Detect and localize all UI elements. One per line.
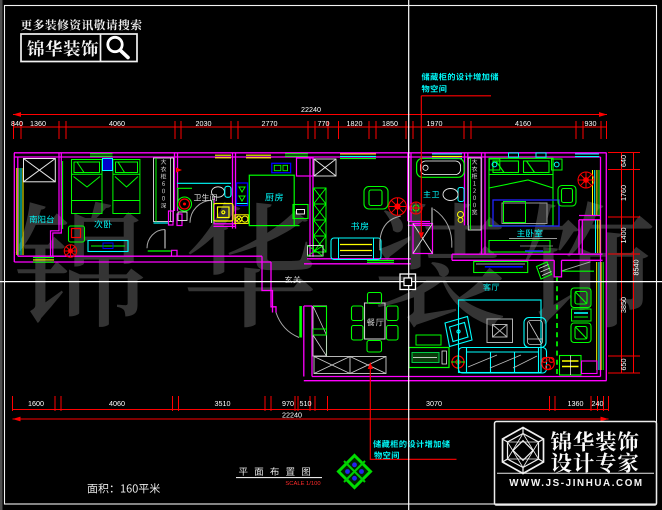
svg-text:240: 240 xyxy=(592,399,604,408)
svg-text:1820: 1820 xyxy=(347,119,363,128)
svg-text:510: 510 xyxy=(300,399,312,408)
svg-text:640: 640 xyxy=(619,155,628,167)
svg-text:770: 770 xyxy=(318,119,330,128)
svg-text:1760: 1760 xyxy=(619,185,628,201)
svg-text:2770: 2770 xyxy=(262,119,278,128)
svg-text:WWW.JS-JINHUA.COM: WWW.JS-JINHUA.COM xyxy=(509,478,643,489)
svg-text:970: 970 xyxy=(282,399,294,408)
svg-text:8540: 8540 xyxy=(632,260,641,276)
svg-text:650: 650 xyxy=(619,359,628,371)
svg-text:1600: 1600 xyxy=(28,399,44,408)
svg-text:4060: 4060 xyxy=(109,399,125,408)
svg-text:1360: 1360 xyxy=(568,399,584,408)
svg-text:930: 930 xyxy=(585,119,597,128)
svg-text:1360: 1360 xyxy=(30,119,46,128)
svg-text:3850: 3850 xyxy=(619,297,628,313)
svg-text:3510: 3510 xyxy=(215,399,231,408)
svg-text:1400: 1400 xyxy=(619,228,628,244)
svg-text:840: 840 xyxy=(11,119,23,128)
svg-text:22240: 22240 xyxy=(301,105,321,114)
svg-text:2030: 2030 xyxy=(196,119,212,128)
svg-text:SCALE 1/100: SCALE 1/100 xyxy=(285,481,320,487)
svg-text:4160: 4160 xyxy=(515,119,531,128)
svg-text:1850: 1850 xyxy=(382,119,398,128)
svg-text:4060: 4060 xyxy=(109,119,125,128)
svg-text:22240: 22240 xyxy=(282,411,302,420)
svg-text:3070: 3070 xyxy=(426,399,442,408)
svg-text:1970: 1970 xyxy=(427,119,443,128)
